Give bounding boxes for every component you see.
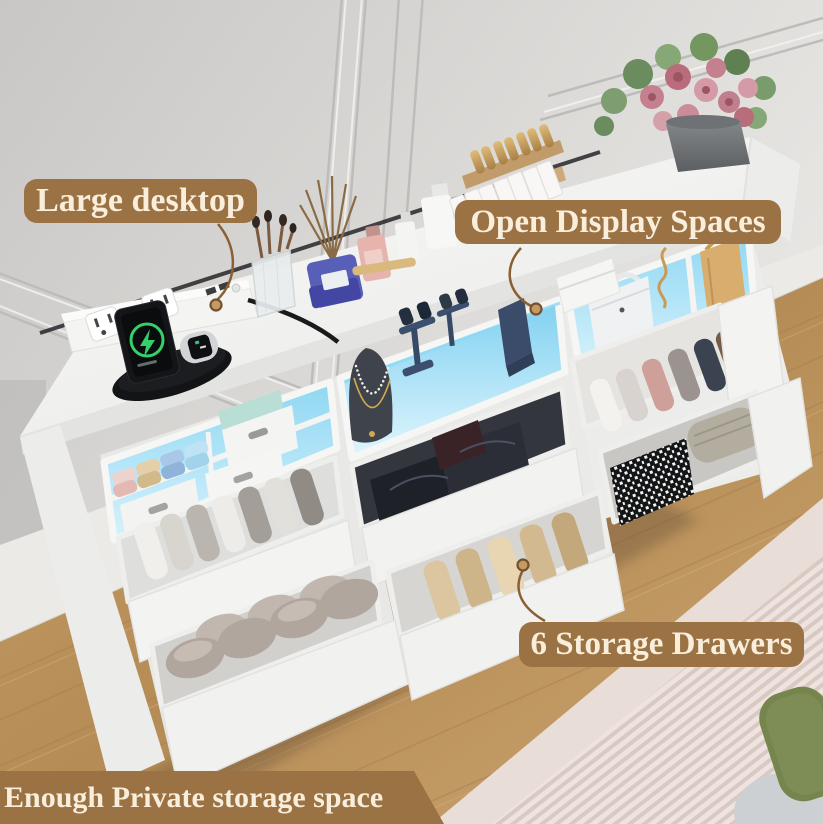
leader-dot	[211, 300, 222, 311]
product-image: Large desktop Open Display Spaces 6 Stor…	[0, 0, 823, 824]
scene-illustration	[0, 0, 823, 824]
label-large-desktop: Large desktop	[24, 179, 257, 223]
label-private-storage: Enough Private storage space	[0, 771, 444, 824]
label-open-display-spaces: Open Display Spaces	[455, 200, 781, 244]
leader-dot	[531, 304, 542, 315]
leader-dot	[518, 560, 529, 571]
label-storage-drawers: 6 Storage Drawers	[519, 622, 804, 667]
